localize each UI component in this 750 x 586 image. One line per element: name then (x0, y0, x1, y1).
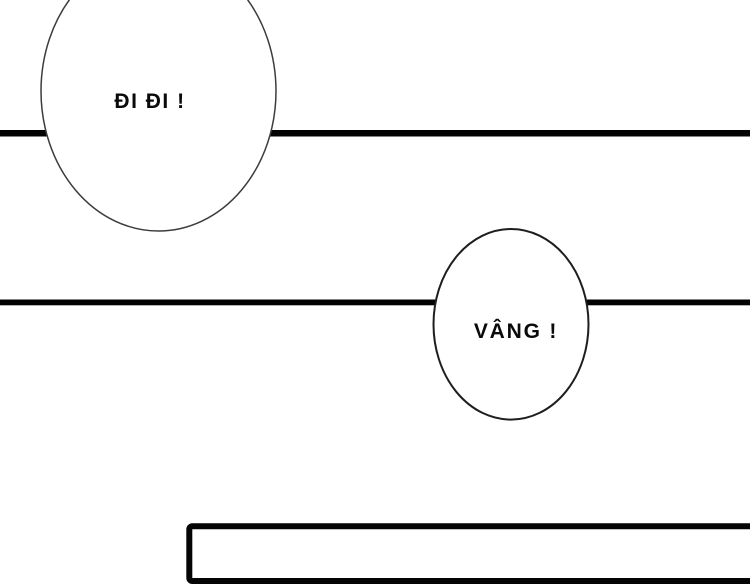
svg-text:ĐI ĐI !: ĐI ĐI ! (114, 90, 185, 113)
svg-text:VÂNG !: VÂNG ! (474, 319, 558, 343)
